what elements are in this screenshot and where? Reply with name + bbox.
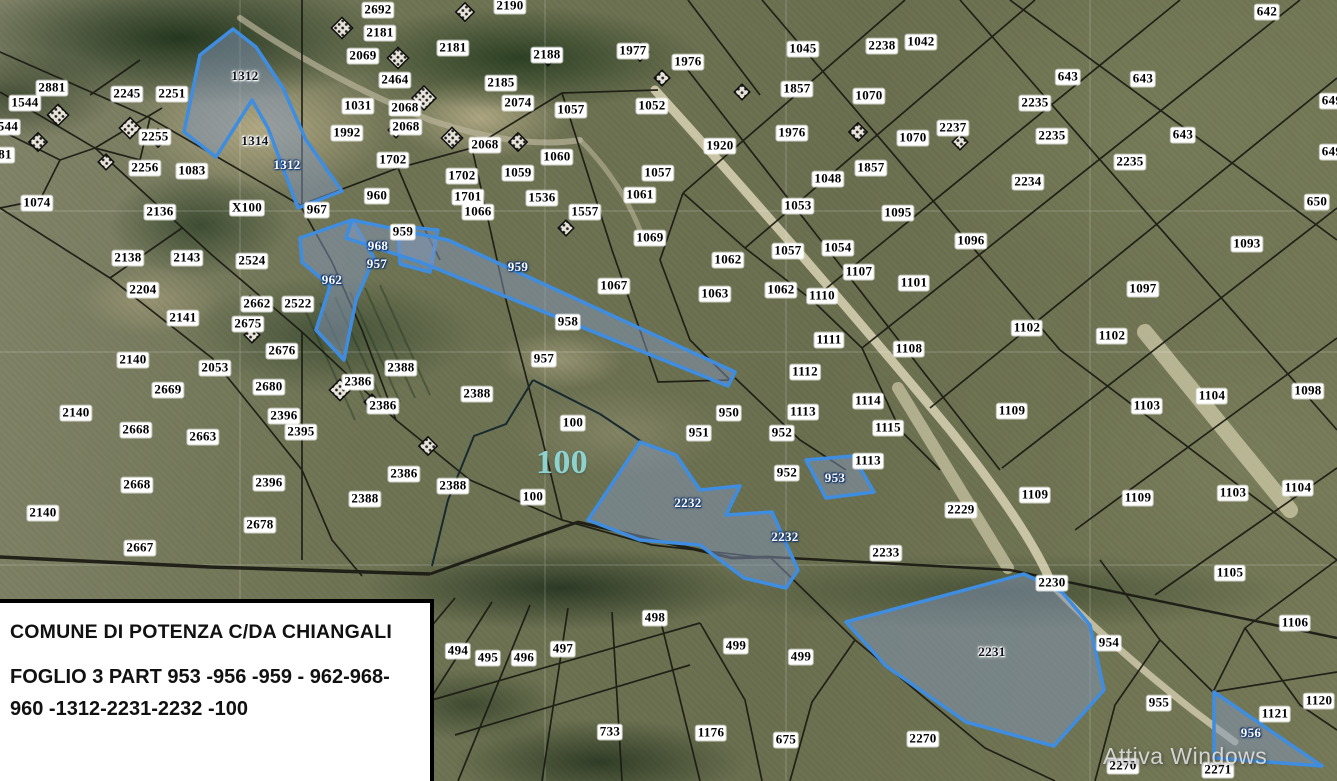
parcel-label-675: 675 (774, 733, 798, 748)
parcel-label-1052: 1052 (636, 99, 667, 114)
parcel-label-956: 956 (1241, 726, 1261, 740)
parcel-label-2190: 2190 (494, 0, 525, 13)
parcel-label-1557: 1557 (569, 205, 600, 220)
parcel-label-643: 643 (1056, 70, 1080, 85)
parcel-label-100: 100 (561, 416, 585, 431)
parcel-label-952: 952 (770, 426, 794, 441)
parcel-label-1103: 1103 (1218, 486, 1248, 501)
map-subtitle-line2: 960 -1312-2231-2232 -100 (10, 698, 422, 721)
parcel-label-1063: 1063 (699, 287, 730, 302)
parcel-label-2140: 2140 (117, 353, 148, 368)
parcel-label-1031: 1031 (342, 99, 373, 114)
parcel-label-1062: 1062 (712, 253, 743, 268)
parcel-label-81: 81 (0, 148, 14, 163)
parcel-label-1104: 1104 (1283, 481, 1313, 496)
parcel-label-954: 954 (1097, 636, 1121, 651)
parcel-label-1095: 1095 (882, 206, 913, 221)
parcel-label-968: 968 (368, 239, 388, 253)
parcel-label-1067: 1067 (598, 279, 629, 294)
parcel-label-2232: 2232 (674, 496, 701, 510)
parcel-label-1108: 1108 (894, 342, 924, 357)
parcel-label-2386: 2386 (367, 399, 398, 414)
parcel-label-967: 967 (305, 203, 329, 218)
parcel-label-1107: 1107 (844, 265, 874, 280)
parcel-label-1544: 1544 (9, 96, 40, 111)
parcel-label-1112: 1112 (790, 365, 820, 380)
parcel-label-1702: 1702 (377, 153, 408, 168)
parcel-label-1114: 1114 (853, 394, 883, 409)
parcel-label-2141: 2141 (167, 311, 198, 326)
parcel-label-1312: 1312 (273, 158, 300, 172)
map-title: COMUNE DI POTENZA C/DA CHIANGALI (10, 621, 422, 644)
parcel-label-1314: 1314 (241, 134, 268, 148)
parcel-label-1702: 1702 (446, 169, 477, 184)
parcel-label-1074: 1074 (21, 196, 52, 211)
parcel-label-643: 643 (1171, 128, 1195, 143)
parcel-label-1976: 1976 (776, 126, 807, 141)
parcel-label-1106: 1106 (1280, 616, 1310, 631)
parcel-label-1109: 1109 (1020, 488, 1050, 503)
parcel-label-2680: 2680 (253, 380, 284, 395)
parcel-label-1048: 1048 (812, 172, 843, 187)
parcel-label-2204: 2204 (127, 283, 158, 298)
parcel-label-X100: X100 (230, 201, 264, 216)
parcel-label-1104: 1104 (1197, 389, 1227, 404)
parcel-label-494: 494 (446, 644, 470, 659)
parcel-label-2388: 2388 (349, 492, 380, 507)
parcel-label-2675: 2675 (232, 317, 263, 332)
parcel-label-959: 959 (508, 260, 528, 274)
parcel-label-2662: 2662 (241, 297, 272, 312)
parcel-label-962: 962 (322, 273, 342, 287)
parcel-label-1536: 1536 (526, 191, 557, 206)
parcel-label-958: 958 (556, 315, 580, 330)
parcel-label-1070: 1070 (897, 131, 928, 146)
parcel-label-2396: 2396 (268, 409, 299, 424)
parcel-label-1066: 1066 (462, 205, 493, 220)
parcel-label-2232: 2232 (771, 530, 798, 544)
parcel-label-959: 959 (391, 225, 415, 240)
parcel-label-2143: 2143 (171, 251, 202, 266)
parcel-label-2053: 2053 (199, 361, 230, 376)
parcel-label-1053: 1053 (782, 199, 813, 214)
parcel-label-1121: 1121 (1260, 707, 1290, 722)
parcel-label-1097: 1097 (1127, 282, 1158, 297)
parcel-label-643: 643 (1131, 72, 1155, 87)
parcel-label-951: 951 (687, 426, 711, 441)
parcel-label-2251: 2251 (156, 87, 187, 102)
windows-activation-watermark: Attiva Windows (1103, 743, 1267, 770)
parcel-label-1061: 1061 (624, 188, 655, 203)
parcel-label-2669: 2669 (152, 383, 183, 398)
parcel-label-649: 649 (1320, 94, 1337, 109)
parcel-label-2140: 2140 (27, 506, 58, 521)
parcel-label-2235: 2235 (1019, 96, 1050, 111)
parcel-label-1054: 1054 (822, 241, 853, 256)
parcel-label-1057: 1057 (555, 103, 586, 118)
parcel-label-2235: 2235 (1036, 129, 1067, 144)
parcel-label-1042: 1042 (905, 35, 936, 50)
parcel-label-1109: 1109 (997, 404, 1027, 419)
parcel-label-2396: 2396 (253, 476, 284, 491)
parcel-label-1105: 1105 (1215, 566, 1245, 581)
parcel-label-1101: 1101 (899, 276, 929, 291)
parcel-label-2230: 2230 (1036, 576, 1067, 591)
parcel-label-2667: 2667 (124, 541, 155, 556)
parcel-label-1102: 1102 (1012, 321, 1042, 336)
parcel-label-1103: 1103 (1132, 399, 1162, 414)
parcel-label-2388: 2388 (385, 361, 416, 376)
parcel-label-1060: 1060 (541, 150, 572, 165)
parcel-label-1059: 1059 (502, 166, 533, 181)
parcel-label-100: 100 (521, 490, 545, 505)
parcel-label-2185: 2185 (485, 76, 516, 91)
parcel-label-2069: 2069 (347, 49, 378, 64)
parcel-label-952: 952 (775, 466, 799, 481)
parcel-label-1976: 1976 (672, 55, 703, 70)
parcel-label-2663: 2663 (187, 430, 218, 445)
parcel-label-2181: 2181 (437, 41, 468, 56)
parcel-label-2388: 2388 (437, 479, 468, 494)
parcel-label-496: 496 (512, 651, 536, 666)
parcel-label-1312: 1312 (231, 69, 258, 83)
parcel-label-2388: 2388 (461, 387, 492, 402)
parcel-label-1110: 1110 (807, 289, 837, 304)
parcel-label-650: 650 (1305, 195, 1329, 210)
parcel-label-1057: 1057 (772, 244, 803, 259)
parcel-label-2068: 2068 (469, 138, 500, 153)
parcel-label-1115: 1115 (873, 421, 903, 436)
parcel-label-953: 953 (825, 471, 845, 485)
parcel-label-2238: 2238 (866, 39, 897, 54)
parcel-label-1992: 1992 (331, 126, 362, 141)
parcel-label-2256: 2256 (129, 161, 160, 176)
parcel-label-1062: 1062 (765, 283, 796, 298)
parcel-label-2270: 2270 (907, 732, 938, 747)
parcel-label-1070: 1070 (853, 89, 884, 104)
parcel-label-2181: 2181 (364, 26, 395, 41)
parcel-label-2237: 2237 (937, 121, 968, 136)
parcel-label-2522: 2522 (282, 297, 313, 312)
map-subtitle-line1: FOGLIO 3 PART 953 -956 -959 - 962-968- (10, 666, 422, 689)
parcel-label-1113: 1113 (853, 454, 883, 469)
parcel-label-2524: 2524 (236, 254, 267, 269)
parcel-label-1857: 1857 (855, 161, 886, 176)
map-title-box: COMUNE DI POTENZA C/DA CHIANGALI FOGLIO … (0, 599, 434, 781)
parcel-label-2668: 2668 (120, 423, 151, 438)
parcel-label-2678: 2678 (244, 518, 275, 533)
parcel-label-1176: 1176 (696, 726, 726, 741)
parcel-label-950: 950 (717, 406, 741, 421)
parcel-label-1057: 1057 (642, 166, 673, 181)
parcel-label-2255: 2255 (139, 130, 170, 145)
parcel-label-2188: 2188 (531, 48, 562, 63)
parcel-label-1096: 1096 (955, 234, 986, 249)
parcel-label-1120: 1120 (1304, 694, 1334, 709)
parcel-label-2881: 2881 (36, 81, 67, 96)
parcel-label-2235: 2235 (1114, 155, 1145, 170)
parcel-label-495: 495 (476, 651, 500, 666)
parcel-label-642: 642 (1255, 5, 1279, 20)
parcel-label-2068: 2068 (389, 101, 420, 116)
parcel-label-2386: 2386 (342, 375, 373, 390)
parcel-label-955: 955 (1147, 696, 1171, 711)
parcel-label-2395: 2395 (285, 425, 316, 440)
parcel-label-499: 499 (724, 639, 748, 654)
parcel-label-1093: 1093 (1231, 237, 1262, 252)
parcel-label-2138: 2138 (112, 251, 143, 266)
parcel-label-2136: 2136 (144, 205, 175, 220)
parcel-label-733: 733 (598, 725, 622, 740)
parcel-label-1701: 1701 (452, 190, 483, 205)
parcel-label-649: 649 (1320, 145, 1337, 160)
parcel-label-544: 544 (0, 120, 20, 135)
parcel-label-1857: 1857 (781, 82, 812, 97)
parcel-label-100: 100 (536, 445, 588, 481)
parcel-label-2234: 2234 (1012, 175, 1043, 190)
parcel-label-2245: 2245 (111, 87, 142, 102)
cadastral-map-canvas: 2692219021812069218121881977197610452238… (0, 0, 1337, 781)
parcel-label-1045: 1045 (787, 42, 818, 57)
parcel-label-957: 957 (367, 257, 387, 271)
parcel-label-2464: 2464 (379, 73, 410, 88)
parcel-label-2676: 2676 (266, 344, 297, 359)
parcel-label-960: 960 (365, 189, 389, 204)
parcel-label-2692: 2692 (362, 3, 393, 18)
parcel-label-497: 497 (551, 642, 575, 657)
parcel-label-2386: 2386 (388, 467, 419, 482)
parcel-label-2074: 2074 (502, 96, 533, 111)
parcel-label-2140: 2140 (60, 406, 91, 421)
parcel-label-1098: 1098 (1292, 384, 1323, 399)
parcel-label-1083: 1083 (176, 164, 207, 179)
parcel-label-2231: 2231 (978, 645, 1005, 659)
parcel-label-1102: 1102 (1097, 329, 1127, 344)
parcel-label-1977: 1977 (617, 44, 648, 59)
parcel-label-1069: 1069 (634, 231, 665, 246)
parcel-label-2668: 2668 (121, 478, 152, 493)
parcel-label-498: 498 (643, 611, 667, 626)
parcel-label-1111: 1111 (814, 333, 843, 348)
parcel-label-1920: 1920 (704, 139, 735, 154)
parcel-label-957: 957 (532, 352, 556, 367)
parcel-label-2229: 2229 (945, 503, 976, 518)
parcel-label-2068: 2068 (390, 120, 421, 135)
parcel-label-1113: 1113 (788, 405, 818, 420)
parcel-label-499: 499 (789, 650, 813, 665)
parcel-label-2233: 2233 (870, 546, 901, 561)
parcel-label-1109: 1109 (1123, 491, 1153, 506)
